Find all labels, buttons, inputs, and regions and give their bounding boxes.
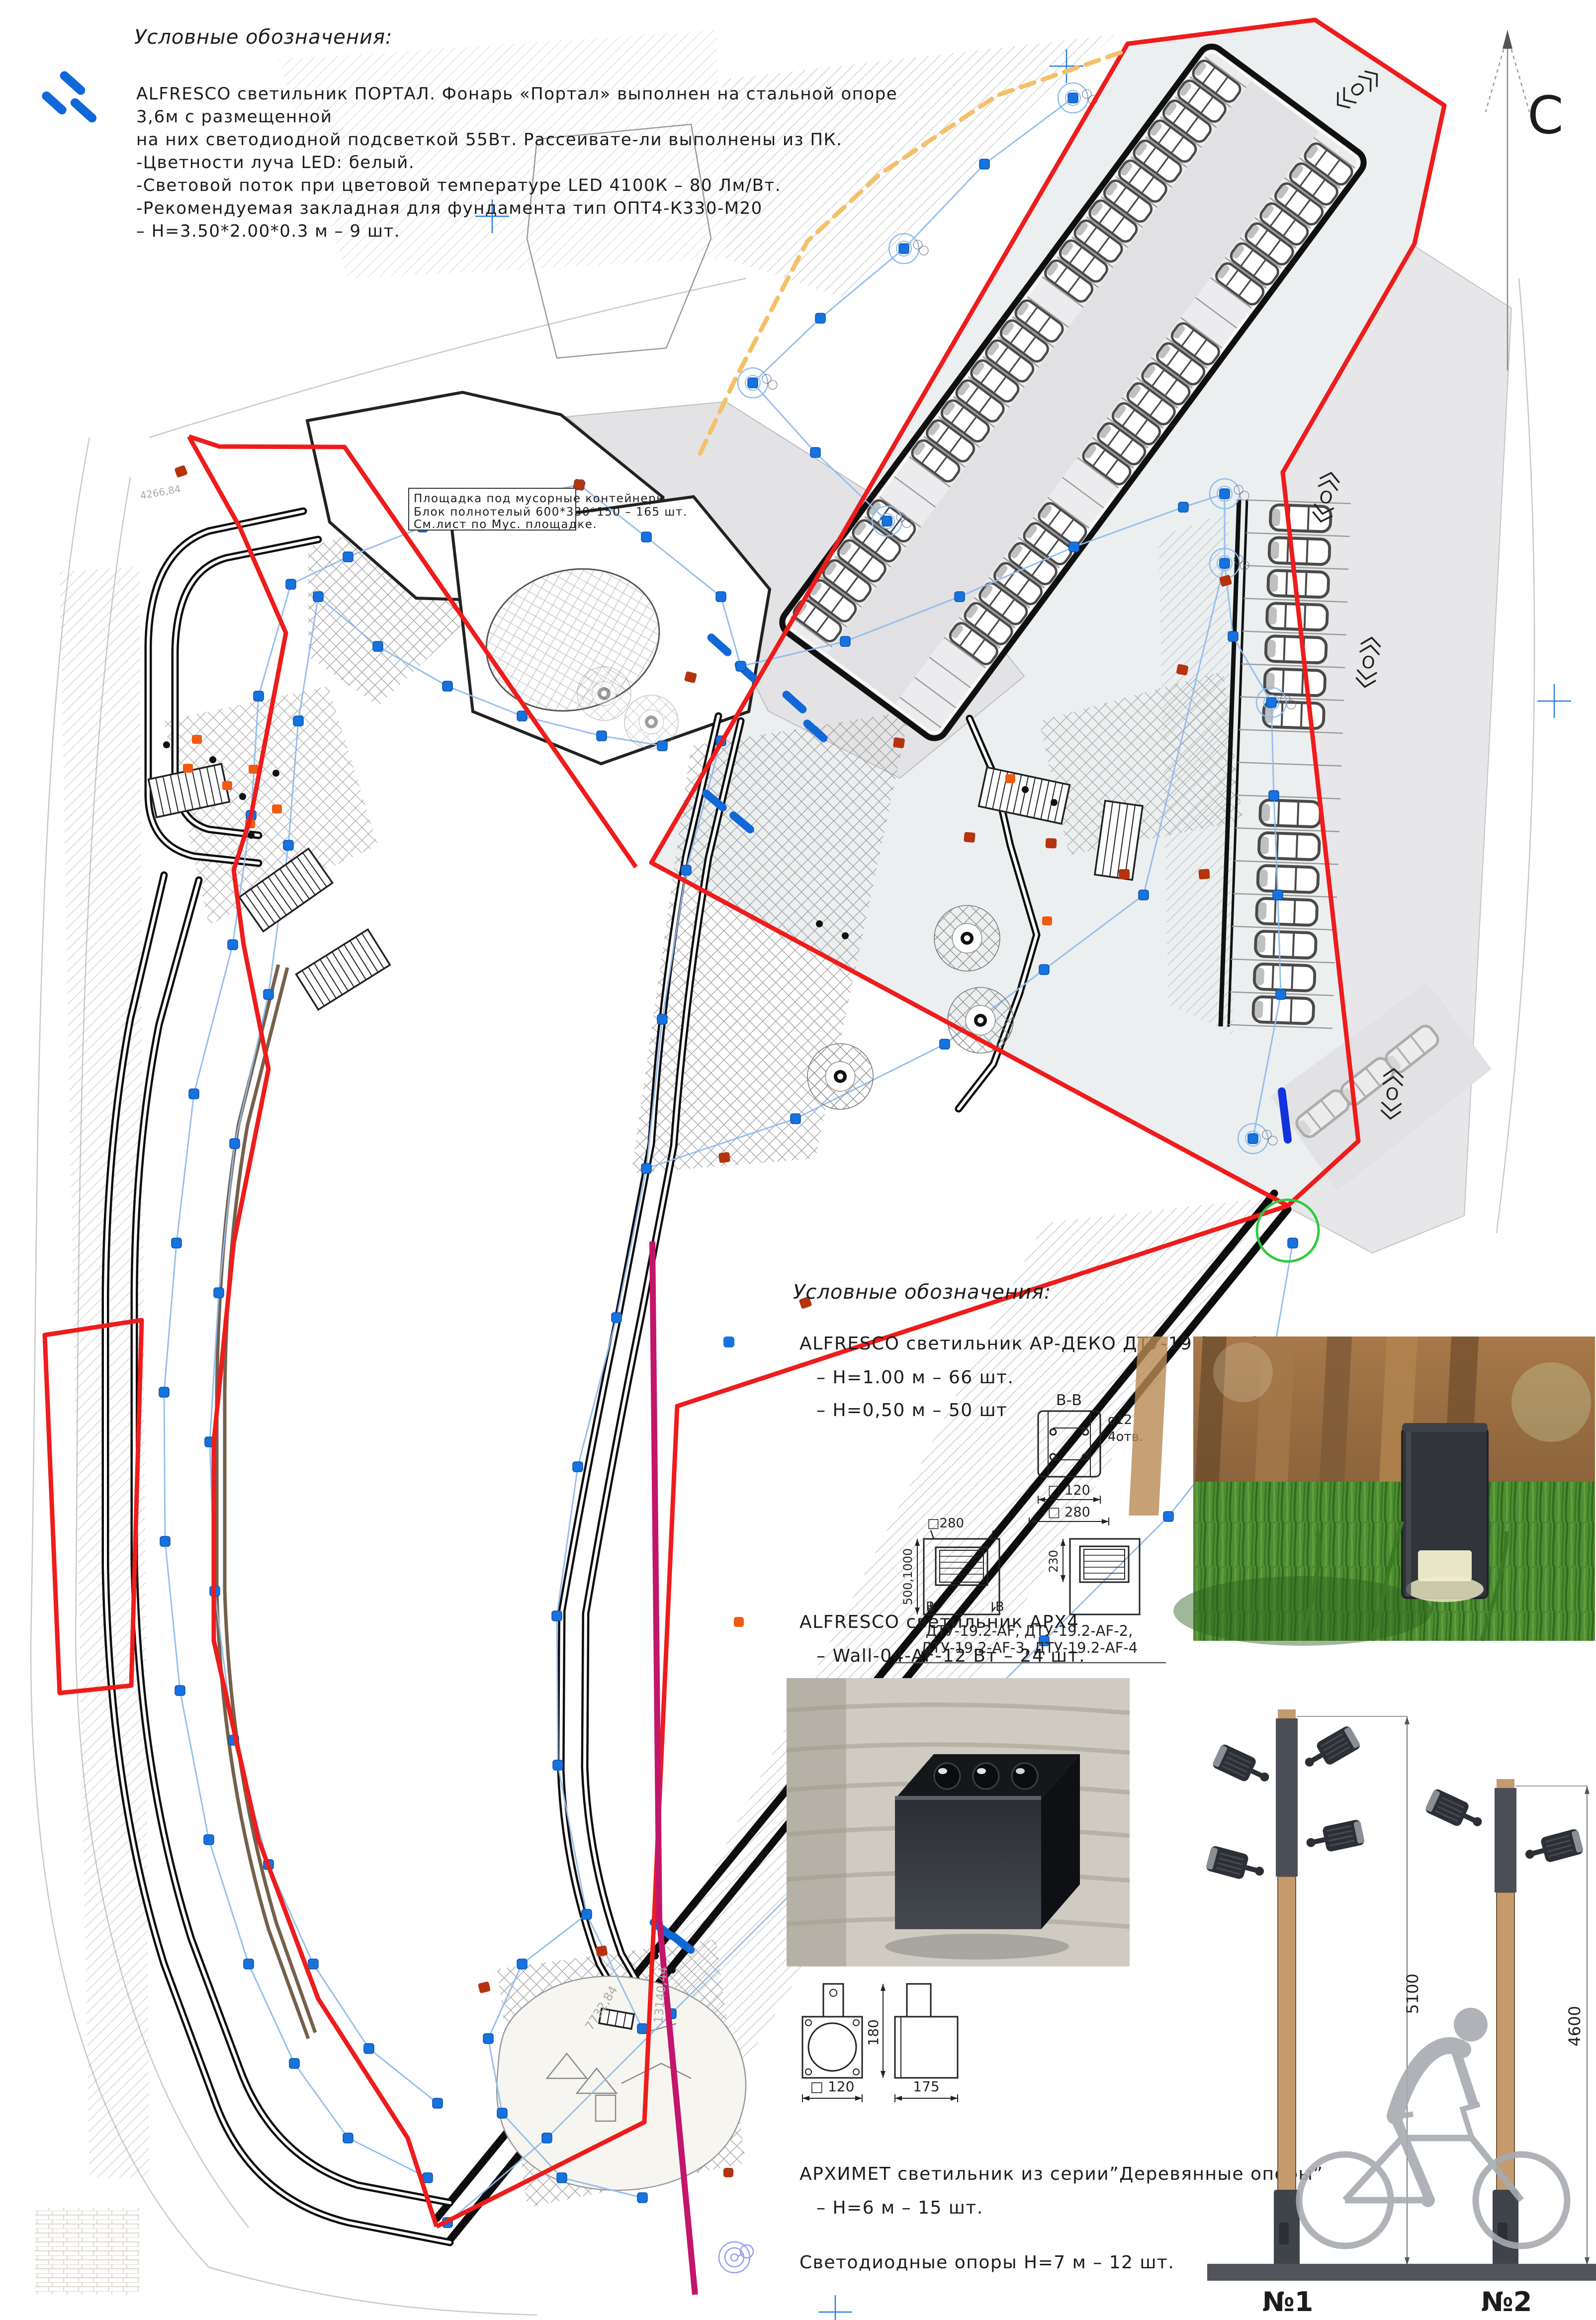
portal-line-6: -Рекомендуемая закладная для фундамента … bbox=[136, 198, 763, 218]
point-marker bbox=[842, 932, 849, 939]
legend-right: Условные обозначения: ALFRESCO светильни… bbox=[719, 1281, 1595, 2273]
tree-trunk-core bbox=[977, 1017, 983, 1023]
photo-arx4-wall bbox=[787, 1678, 1130, 1966]
ardeko-light-marker bbox=[1068, 93, 1078, 103]
ardeko-light-marker bbox=[308, 1959, 318, 1969]
car-icon bbox=[1257, 865, 1319, 892]
section-holes-d: ø12 bbox=[1108, 1413, 1132, 1428]
ardeko-light-marker bbox=[214, 1288, 224, 1298]
car-icon bbox=[1269, 537, 1330, 565]
arhimet-light-marker bbox=[1198, 869, 1210, 879]
road-symbol-letter: О bbox=[1360, 652, 1376, 673]
arx4-light-marker bbox=[272, 804, 282, 813]
ardeko-light-marker bbox=[1228, 631, 1238, 641]
tree-trunk-core bbox=[648, 719, 654, 725]
wall-dim-side: 175 bbox=[913, 2078, 939, 2095]
section-label: В-В bbox=[1056, 1392, 1082, 1409]
survey-cross-icon bbox=[1537, 684, 1571, 718]
ardeko-light-marker bbox=[1178, 502, 1188, 512]
wall-cube-fixture bbox=[895, 1754, 1080, 1929]
ardeko-light-marker bbox=[1039, 965, 1049, 975]
cyclist-silhouette bbox=[1299, 2008, 1567, 2246]
ardeko-light-marker bbox=[597, 731, 607, 741]
ardeko-light-marker bbox=[791, 1114, 800, 1124]
ardeko-light-marker bbox=[815, 313, 825, 323]
arx4-title: ALFRESCO светильник АРХ4 bbox=[799, 1612, 1079, 1632]
ardeko-light-marker bbox=[641, 1163, 651, 1173]
ardeko-light-marker bbox=[517, 711, 527, 721]
poles-panel: 5100 4600 bbox=[1205, 1709, 1596, 2318]
ardeko-light-marker bbox=[612, 1313, 621, 1323]
car-icon bbox=[1256, 898, 1318, 925]
tree-trunk-core bbox=[601, 691, 607, 697]
ardeko-light-marker bbox=[1266, 698, 1276, 708]
ardeko-light-marker bbox=[1269, 791, 1279, 801]
ardeko-light-marker bbox=[160, 1536, 170, 1546]
ardeko-light-marker bbox=[373, 641, 383, 651]
ardeko-light-marker bbox=[230, 1139, 240, 1149]
ardeko-light-marker bbox=[175, 1686, 185, 1695]
lighting-plan-sheet: ОООО Площадка под мусорные контейнеры Бл… bbox=[0, 0, 1596, 2320]
arhimet-light-marker bbox=[1046, 838, 1057, 849]
ardeko-light-marker bbox=[557, 2173, 567, 2183]
ardeko-light-marker bbox=[483, 2034, 493, 2044]
ardeko-light-marker bbox=[293, 716, 303, 726]
ardeko-light-marker bbox=[1276, 989, 1286, 999]
ardeko-light-marker bbox=[517, 1959, 527, 1969]
wall-dim-height: 180 bbox=[865, 2019, 882, 2046]
legend-right-title: Условные обозначения: bbox=[793, 1281, 1052, 1304]
arhimet-light-marker bbox=[478, 1981, 491, 1993]
ardeko-light-marker bbox=[244, 1959, 254, 1969]
pole1-dim: 5100 bbox=[1403, 1973, 1422, 2014]
ardeko-light-marker bbox=[189, 1089, 199, 1099]
ardeko-light-marker bbox=[1220, 558, 1230, 568]
ardeko-light-marker bbox=[940, 1039, 950, 1049]
arx4-light-marker bbox=[222, 781, 232, 790]
ardeko-light-marker bbox=[1248, 1134, 1258, 1144]
note-line3: См.лист по Мус. площадке. bbox=[414, 518, 597, 531]
elevation-dim-top: □280 bbox=[927, 1516, 964, 1531]
ardeko-light-marker bbox=[637, 2193, 647, 2203]
photo-ardeko-bollard bbox=[1129, 1337, 1595, 1646]
wall-dim-front: □ 120 bbox=[810, 2078, 855, 2095]
arhimet-marker-icon bbox=[723, 2168, 733, 2177]
ardeko-light-marker bbox=[264, 989, 273, 999]
arx4-light-marker bbox=[1005, 774, 1015, 783]
point-marker bbox=[816, 920, 823, 927]
wall-dims-drawing: □ 120 180 175 bbox=[802, 1984, 958, 2102]
ardeko-light-marker bbox=[172, 1238, 181, 1248]
stairs-symbol bbox=[296, 929, 390, 1009]
led-title: Светодиодные опоры Н=7 м – 12 шт. bbox=[799, 2252, 1174, 2273]
elevation-dim-left: 500,1000 bbox=[901, 1548, 915, 1606]
arhimet-light-marker bbox=[893, 737, 905, 749]
ardeko-light-marker bbox=[204, 1835, 214, 1845]
arhimet-light-marker bbox=[1176, 664, 1188, 676]
arhimet-light-marker bbox=[1119, 869, 1130, 879]
ardeko-light-marker bbox=[343, 552, 353, 562]
portal-light-icon bbox=[40, 70, 98, 125]
car-icon bbox=[1258, 832, 1320, 860]
tree-symbol bbox=[948, 987, 1013, 1053]
elevation-dim-right: 230 bbox=[1047, 1550, 1061, 1573]
tree-trunk-core bbox=[964, 935, 970, 941]
ardeko-light-marker bbox=[313, 592, 323, 602]
ardeko-light-marker bbox=[582, 1909, 592, 1919]
ardeko-light-marker bbox=[228, 940, 238, 950]
led-pole-icon bbox=[719, 2242, 753, 2273]
note-line1: Площадка под мусорные контейнеры bbox=[414, 492, 666, 505]
section-dim-inner: □ 120 bbox=[1048, 1483, 1090, 1498]
tree-trunk-core bbox=[837, 1073, 843, 1079]
point-marker bbox=[272, 770, 279, 777]
ardeko-light-marker bbox=[748, 378, 758, 388]
ardeko-light-marker bbox=[955, 592, 965, 602]
car-icon bbox=[1260, 800, 1321, 827]
bollard-fixture bbox=[1402, 1423, 1488, 1602]
car-icon bbox=[1253, 996, 1314, 1024]
ardeko-light-marker bbox=[573, 1462, 583, 1472]
ardeko-light-marker bbox=[657, 741, 667, 751]
ardeko-light-marker bbox=[736, 661, 746, 671]
ardeko-marker-icon bbox=[723, 1337, 734, 1347]
ardeko-light-marker bbox=[657, 1014, 667, 1024]
car-icon bbox=[1270, 505, 1331, 532]
ardeko-light-marker bbox=[286, 579, 296, 589]
note-line2: Блок полнотелый 600*330*150 – 165 шт. bbox=[414, 506, 688, 519]
north-arrow-head bbox=[1503, 30, 1512, 49]
ardeko-light-marker bbox=[810, 447, 820, 457]
arx4-light-marker bbox=[1042, 916, 1052, 925]
tree-symbol bbox=[807, 1044, 873, 1109]
ground-line bbox=[1207, 2264, 1596, 2281]
arx4-light-marker bbox=[183, 764, 193, 773]
ardeko-light-marker bbox=[716, 592, 726, 602]
arhimet-light-marker bbox=[174, 465, 188, 478]
portal-line-2: 3,6м с размещенной bbox=[136, 107, 332, 127]
ardeko-light-marker bbox=[882, 516, 892, 526]
point-marker bbox=[1022, 786, 1029, 793]
portal-line-7: – Н=3.50*2.00*0.3 м – 9 шт. bbox=[136, 221, 400, 241]
ardeko-light-marker bbox=[1288, 1238, 1298, 1248]
ardeko-light-marker bbox=[1220, 489, 1230, 499]
arhimet-light-marker bbox=[964, 832, 975, 843]
ardeko-light-marker bbox=[542, 2133, 552, 2143]
survey-cross-icon bbox=[818, 2295, 852, 2320]
playground bbox=[497, 1976, 746, 2190]
arhimet-light-marker bbox=[595, 1945, 608, 1957]
ardeko-light-marker bbox=[641, 532, 651, 542]
ardeko-light-marker bbox=[433, 2098, 443, 2108]
symbol-ring bbox=[919, 246, 928, 255]
point-marker bbox=[248, 832, 255, 839]
ardeko-light-marker bbox=[364, 2044, 374, 2053]
portal-line-4: -Цветности луча LED: белый. bbox=[136, 153, 415, 173]
arx4-marker-icon bbox=[734, 1617, 744, 1627]
pole2-dim: 4600 bbox=[1565, 2006, 1584, 2046]
legend-top-title: Условные обозначения: bbox=[134, 26, 393, 49]
car-icon bbox=[1255, 931, 1317, 958]
north-label: С bbox=[1527, 85, 1564, 146]
ardeko-light-marker bbox=[159, 1387, 169, 1397]
tree-symbol bbox=[624, 695, 678, 749]
ardeko-light-marker bbox=[1273, 890, 1283, 900]
site-plan-canvas: ОООО Площадка под мусорные контейнеры Бл… bbox=[0, 0, 1596, 2320]
point-marker bbox=[239, 793, 246, 800]
symbol-ring bbox=[768, 380, 777, 389]
point-marker bbox=[209, 756, 216, 763]
ardeko-light-marker bbox=[681, 865, 691, 875]
ardeko-light-marker bbox=[283, 840, 293, 850]
ardeko-light-marker bbox=[637, 2024, 647, 2034]
survey-number-1: 4266,84 bbox=[139, 483, 182, 502]
ardeko-qty1: – Н=1.00 м – 66 шт. bbox=[816, 1367, 1014, 1388]
ardeko-light-marker bbox=[443, 681, 452, 691]
arhimet-title: АРХИМЕТ светильник из серии”Деревянные о… bbox=[799, 2164, 1324, 2184]
pole2-label: №2 bbox=[1481, 2286, 1532, 2318]
portal-line-1: ALFRESCO светильник ПОРТАЛ. Фонарь «Порт… bbox=[136, 84, 897, 104]
ardeko-light-marker bbox=[1069, 542, 1079, 552]
point-marker bbox=[1051, 799, 1058, 806]
ardeko-light-marker bbox=[289, 2058, 299, 2068]
car-icon bbox=[1264, 669, 1326, 696]
tree-symbol bbox=[577, 667, 631, 720]
road-symbol-letter: О bbox=[1385, 1084, 1399, 1105]
ardeko-light-marker bbox=[552, 1611, 562, 1621]
pole1-label: №1 bbox=[1262, 2286, 1314, 2318]
car-icon bbox=[1254, 964, 1315, 991]
ardeko-light-marker bbox=[979, 159, 989, 169]
ardeko-qty2: – Н=0,50 м – 50 шт bbox=[816, 1400, 1008, 1421]
arx4-light-marker bbox=[192, 735, 202, 744]
arx4-qty: – Wall-04-AF-12 Вт – 24 шт. bbox=[816, 1646, 1085, 1666]
ardeko-light-marker bbox=[254, 691, 264, 701]
portal-line-5: -Световой поток при цветовой температуре… bbox=[136, 176, 781, 195]
ardeko-light-marker bbox=[1139, 890, 1149, 900]
point-marker bbox=[163, 741, 170, 748]
ardeko-light-marker bbox=[497, 2108, 507, 2118]
arhimet-light-marker bbox=[718, 1152, 730, 1163]
ardeko-light-marker bbox=[343, 2133, 353, 2143]
car-icon bbox=[1265, 636, 1327, 663]
ardeko-light-marker bbox=[840, 636, 850, 646]
tree-symbol bbox=[934, 905, 1000, 971]
portal-line-3: на них светодиодной подсветкой 55Вт. Рас… bbox=[136, 130, 842, 150]
arhimet-qty: – Н=6 м – 15 шт. bbox=[816, 2198, 983, 2218]
ardeko-light-marker bbox=[899, 244, 909, 254]
section-dim-outer: □ 280 bbox=[1048, 1505, 1090, 1520]
ardeko-light-marker bbox=[553, 1760, 563, 1770]
ardeko-light-marker bbox=[1163, 1512, 1173, 1521]
